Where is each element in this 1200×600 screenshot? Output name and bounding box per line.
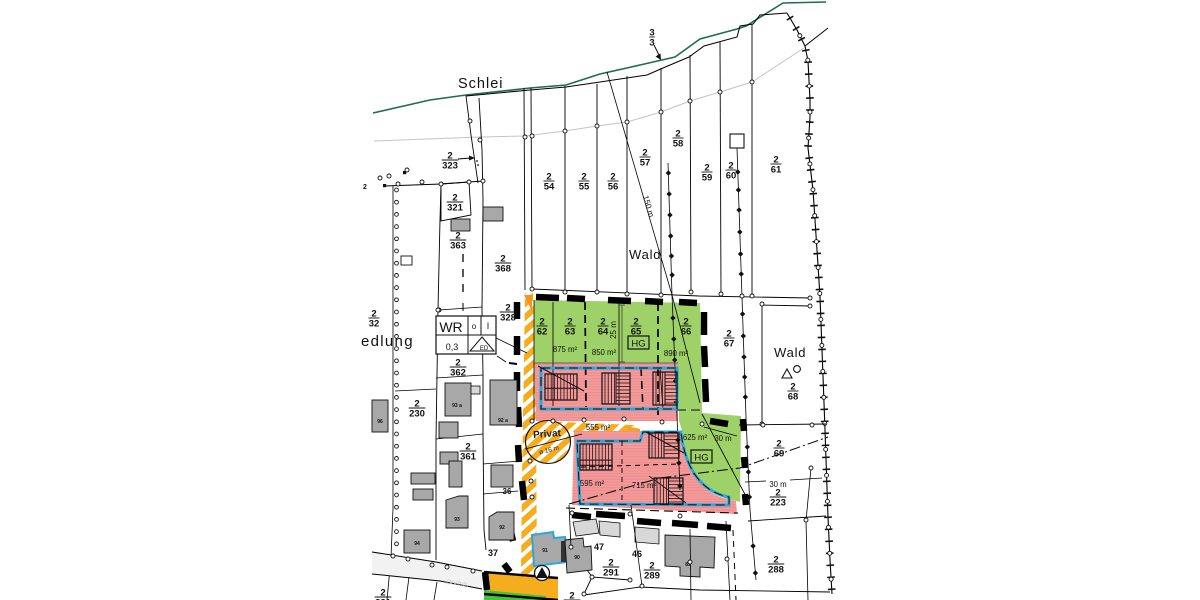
svg-text:58: 58 (673, 138, 684, 149)
svg-text:2: 2 (363, 184, 367, 191)
svg-text:361: 361 (460, 451, 477, 462)
svg-text:68: 68 (788, 391, 799, 402)
svg-text:Wald: Wald (629, 247, 661, 262)
svg-text:57: 57 (640, 157, 651, 168)
svg-text:62: 62 (537, 326, 548, 337)
svg-text:875 m²: 875 m² (553, 345, 578, 354)
svg-text:91: 91 (542, 548, 548, 554)
svg-text:66: 66 (681, 326, 692, 337)
svg-text:890 m²: 890 m² (664, 349, 689, 358)
svg-text:65: 65 (631, 326, 642, 337)
svg-text:67: 67 (724, 338, 735, 349)
svg-text:368: 368 (495, 263, 511, 274)
svg-text:0,3: 0,3 (446, 342, 459, 352)
svg-text:850 m²: 850 m² (592, 348, 617, 357)
svg-text:61: 61 (771, 164, 782, 175)
svg-text:WR: WR (439, 319, 462, 335)
svg-text:59: 59 (702, 172, 713, 183)
svg-text:56: 56 (608, 181, 619, 192)
svg-text:363: 363 (450, 240, 466, 251)
svg-text:60: 60 (726, 170, 737, 181)
svg-text:96: 96 (377, 419, 383, 425)
svg-text:25 m: 25 m (609, 321, 618, 339)
svg-text:Wald: Wald (774, 345, 806, 360)
svg-text:o: o (472, 322, 477, 331)
svg-text:362: 362 (450, 367, 466, 378)
svg-text:edlung: edlung (361, 333, 414, 350)
svg-text:32: 32 (369, 318, 380, 329)
svg-text:90: 90 (574, 555, 580, 561)
svg-text:288: 288 (768, 564, 784, 575)
svg-text:ED: ED (480, 346, 489, 352)
svg-text:46: 46 (632, 549, 642, 559)
svg-text:55: 55 (579, 181, 590, 192)
svg-text:54: 54 (544, 181, 555, 192)
svg-text:HG: HG (694, 453, 708, 464)
svg-text:323: 323 (442, 160, 458, 171)
svg-text:321: 321 (447, 202, 464, 213)
svg-text:93 a: 93 a (452, 403, 462, 409)
svg-text:69: 69 (774, 448, 785, 459)
svg-text:94: 94 (414, 541, 420, 547)
svg-text:30 m: 30 m (769, 480, 786, 489)
svg-text:2: 2 (569, 590, 574, 600)
svg-text:30 m: 30 m (714, 434, 731, 443)
svg-text:291: 291 (603, 567, 620, 578)
svg-text:Privat: Privat (533, 428, 562, 441)
svg-text:37: 37 (488, 548, 498, 558)
svg-text:36: 36 (503, 487, 512, 496)
svg-text:63: 63 (565, 326, 576, 337)
svg-text:47: 47 (594, 542, 604, 552)
svg-text:93: 93 (454, 517, 460, 523)
svg-text:289: 289 (644, 570, 660, 581)
svg-text:Schlei: Schlei (458, 76, 504, 92)
svg-text:HG: HG (631, 339, 645, 350)
svg-text:230: 230 (409, 408, 425, 419)
svg-text:3: 3 (649, 37, 654, 48)
svg-text:92: 92 (499, 525, 505, 531)
svg-text:223: 223 (770, 497, 786, 508)
svg-text:I: I (487, 321, 490, 331)
svg-text:92 a: 92 a (498, 418, 508, 424)
svg-text:625 m²: 625 m² (683, 433, 708, 442)
svg-text:555 m²: 555 m² (586, 423, 611, 432)
svg-text:595 m²: 595 m² (580, 479, 605, 488)
svg-text:64: 64 (598, 326, 609, 337)
svg-text:715 m²: 715 m² (632, 481, 657, 490)
svg-text:328: 328 (500, 312, 516, 323)
